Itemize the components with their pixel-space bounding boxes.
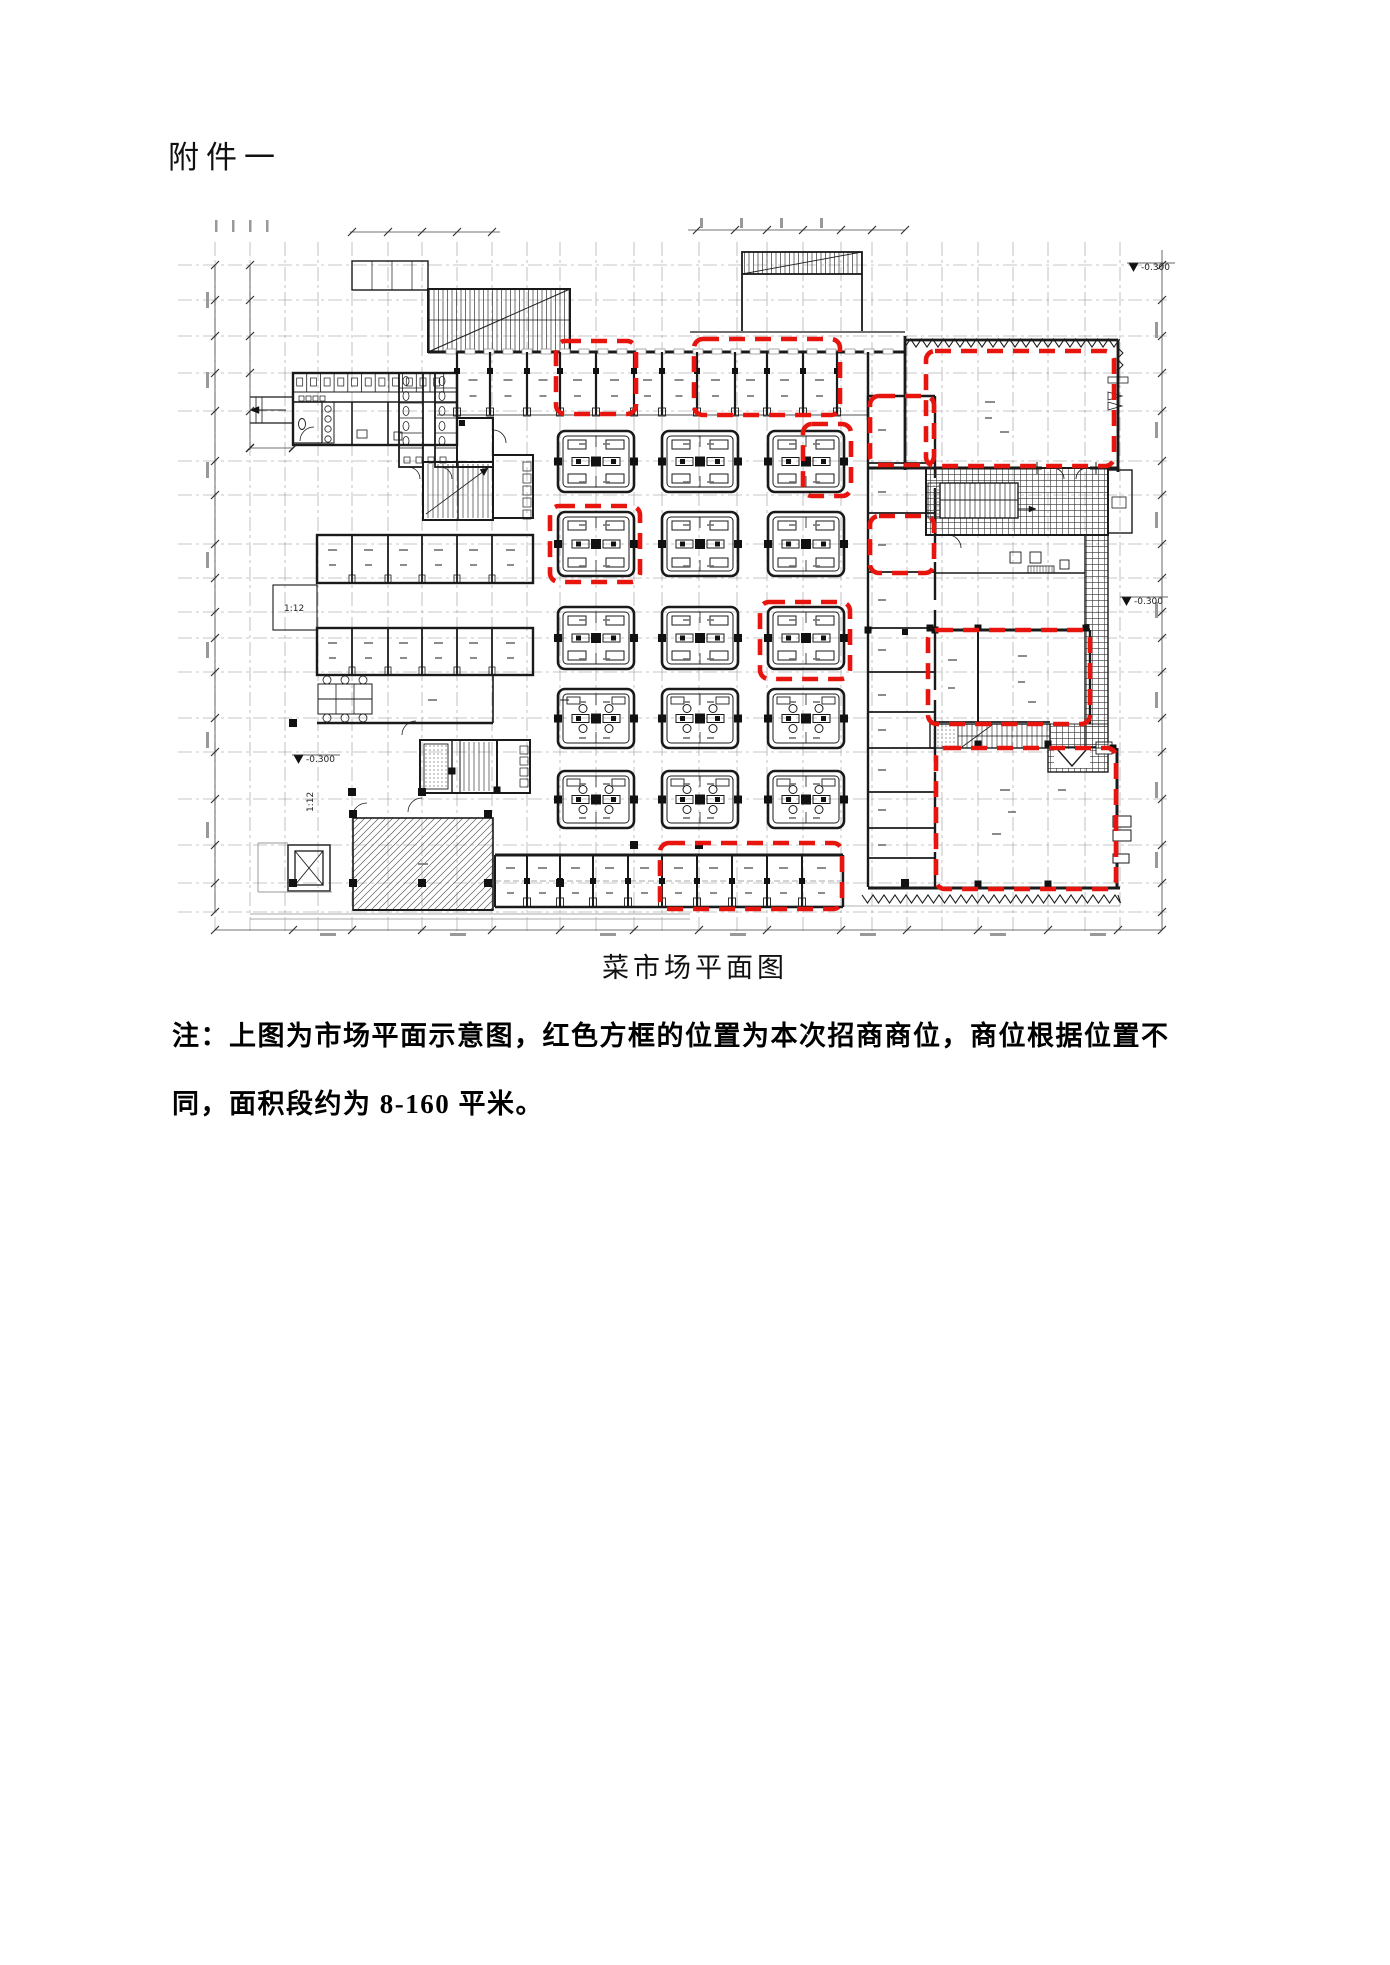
market-stall-island (768, 431, 844, 492)
structural-grid (178, 242, 1168, 935)
floor-plan-drawing: -0.300-0.300-0.3001:121:12 (160, 205, 1210, 955)
note-line-2: 同，面积段约为 8-160 平米。 (172, 1082, 1292, 1121)
market-stall-island (662, 689, 738, 748)
level-annotation: 1:12 (306, 792, 316, 812)
market-stall-island (768, 689, 844, 748)
market-stall-island (558, 431, 634, 492)
market-stall-islands (558, 431, 844, 828)
commercial-spot-marker (926, 351, 1114, 466)
attachment-title: 附件一 (168, 132, 282, 177)
level-annotation: 1:12 (284, 604, 304, 614)
floor-plan-figure: -0.300-0.300-0.3001:121:12 (160, 205, 1210, 955)
document-page: 附件一 -0.300-0.300-0.3001:121:12 菜市场平面图 注：… (0, 0, 1390, 1965)
figure-caption: 菜市场平面图 (0, 946, 1390, 985)
market-stall-island (768, 771, 844, 828)
market-stall-island (662, 771, 738, 828)
plan-annotations: -0.300-0.300-0.3001:121:12 (284, 263, 1175, 812)
market-stall-island (662, 431, 738, 492)
market-stall-island (558, 689, 634, 748)
level-annotation: -0.300 (1134, 597, 1163, 607)
level-annotation: -0.300 (1141, 263, 1170, 273)
note-line-1: 注：上图为市场平面示意图，红色方框的位置为本次招商商位，商位根据位置不 (172, 1014, 1292, 1053)
commercial-spot-marker (660, 843, 842, 909)
commercial-spot-marker (928, 630, 1090, 724)
level-annotation: -0.300 (306, 755, 335, 765)
market-stall-island (558, 771, 634, 828)
